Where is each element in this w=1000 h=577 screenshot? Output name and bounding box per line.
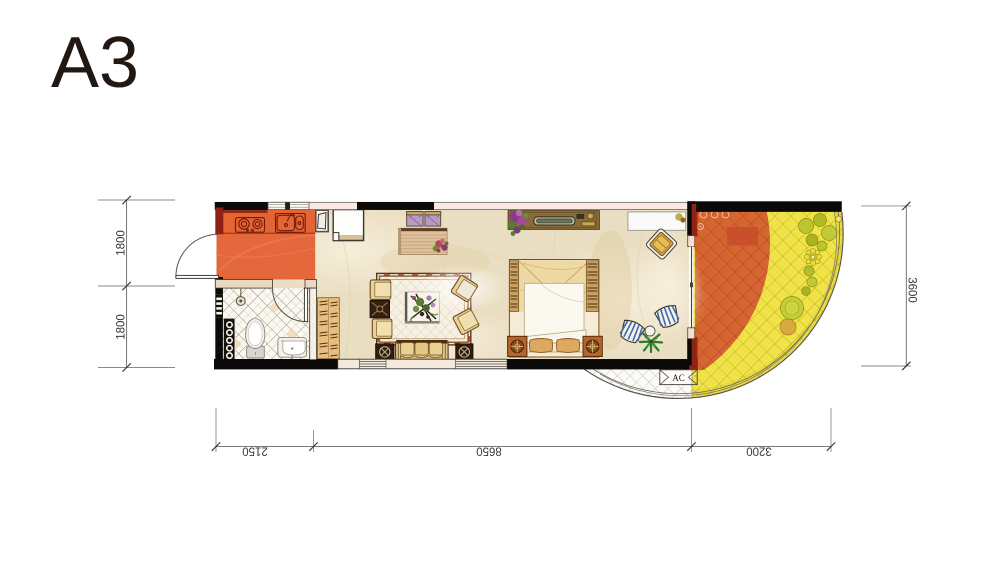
svg-text:3600: 3600 <box>906 277 918 303</box>
svg-text:8650: 8650 <box>476 445 502 457</box>
svg-text:1800: 1800 <box>116 230 128 256</box>
svg-text:1800: 1800 <box>116 314 128 340</box>
svg-text:A3: A3 <box>51 23 139 103</box>
svg-text:AC: AC <box>672 373 685 383</box>
svg-text:2150: 2150 <box>242 445 268 457</box>
svg-text:3200: 3200 <box>746 445 772 457</box>
